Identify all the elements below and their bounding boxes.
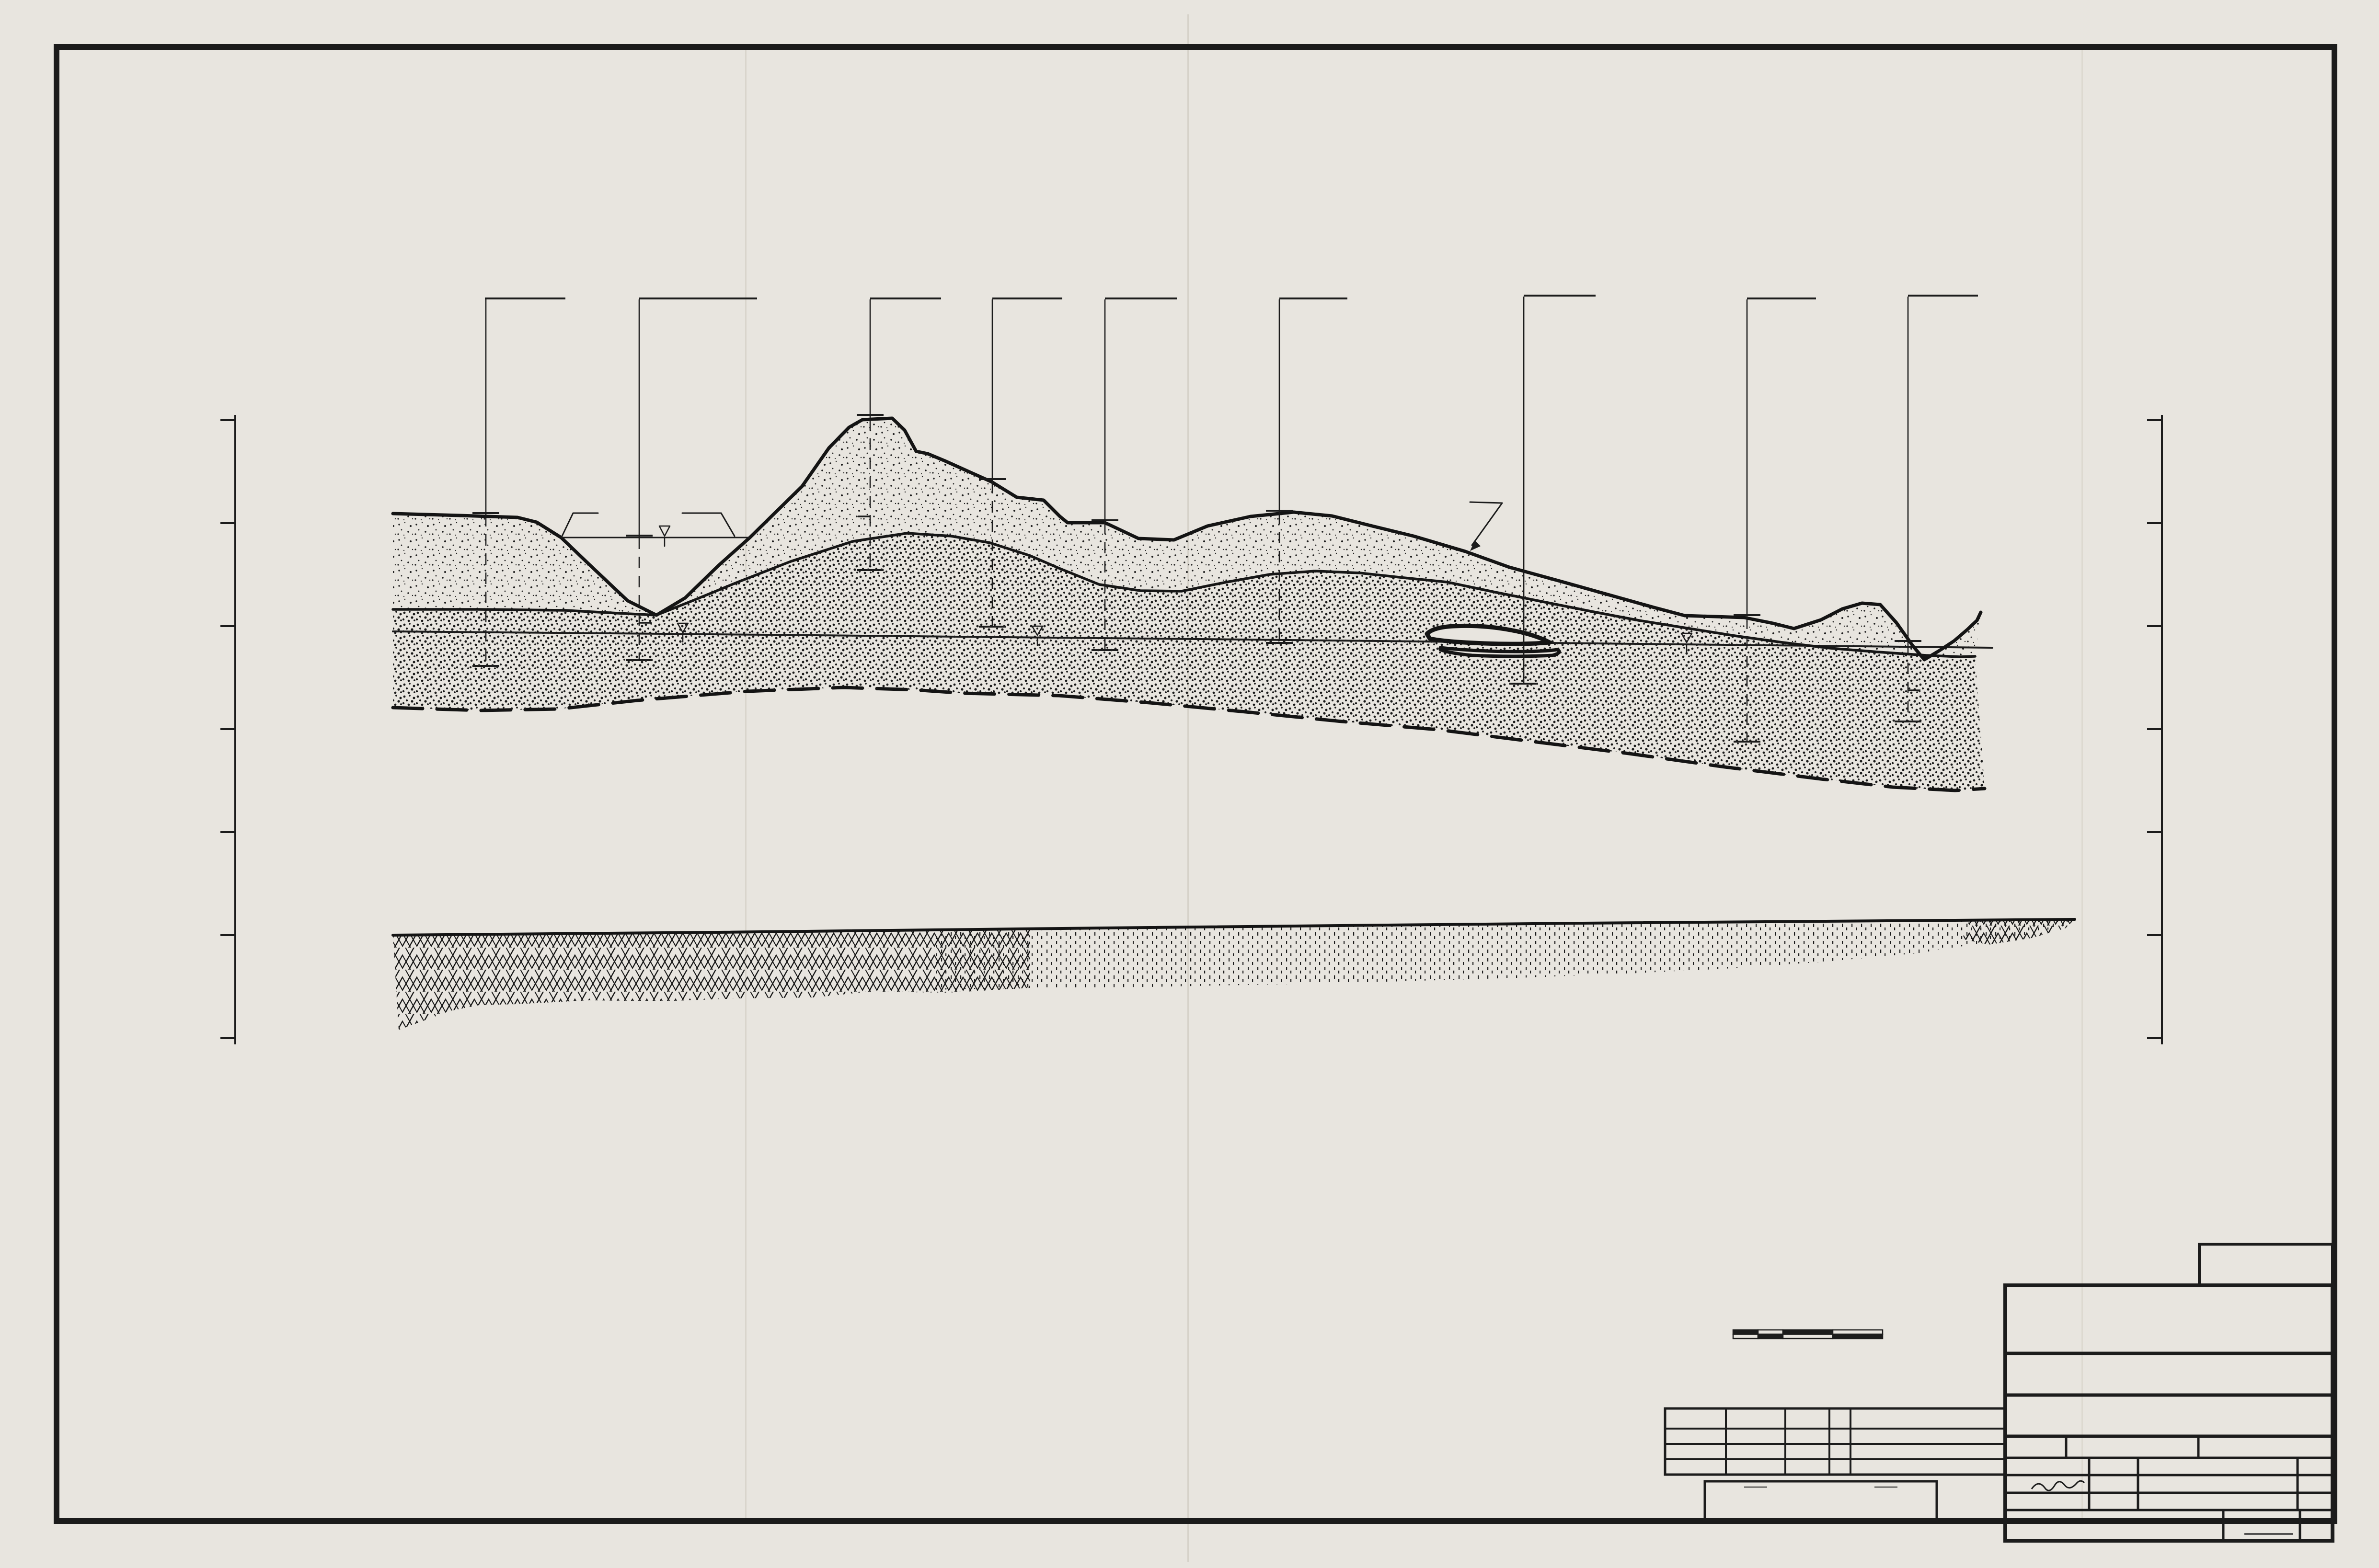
proprietary-box [1705,1481,1937,1520]
approver-signature [2032,1481,2084,1490]
fold-line [1187,14,1189,1562]
scale-bar [1733,1330,1883,1339]
figure-box [2199,1244,2333,1285]
scanned-drawing-sheet [0,0,2379,1568]
title-block-gridlines [2005,1353,2333,1541]
ground-surface-annotation [1470,502,1502,551]
left-elevation-axis [220,415,235,1044]
leader-line [1470,502,1502,545]
title-block-border [2005,1285,2333,1541]
lake-label-bracket [562,513,735,536]
water-level-icon [659,526,670,536]
fold-line [745,47,747,1521]
bedrock-band [393,919,2075,1030]
scale-bar-segments [1733,1330,1883,1339]
bedrock-hatch-right-wedge [1962,919,2075,945]
sheet-border [57,47,2334,1521]
oak-lake [561,513,750,546]
title-block [2005,1244,2333,1541]
bedrock-dots-right [934,919,2075,990]
revision-table [1665,1408,2005,1475]
axis-ticks [2147,420,2162,1038]
axis-ticks [220,420,235,1038]
fold-line [2081,47,2083,1521]
right-elevation-axis [2147,415,2162,1044]
drawing-svg [0,0,2379,1568]
cross-section [393,418,2075,1030]
